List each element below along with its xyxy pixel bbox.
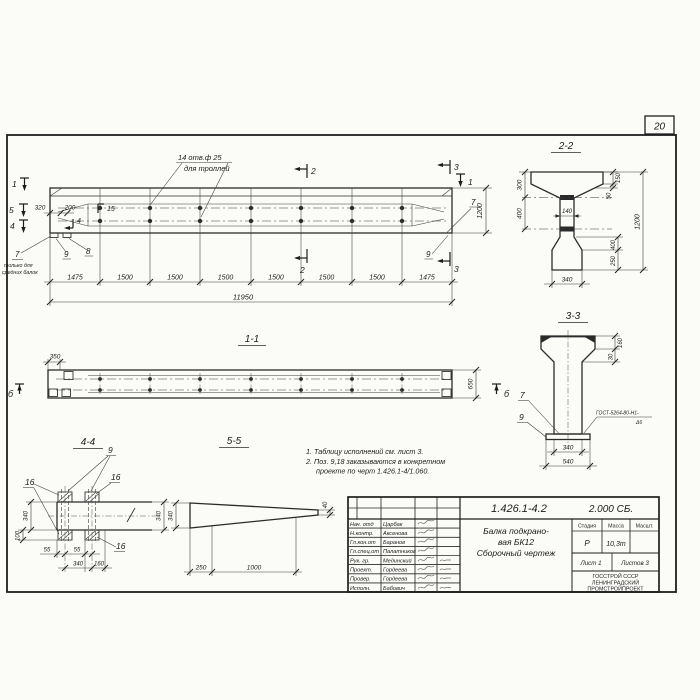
dim-350: 350	[50, 354, 61, 361]
dim-650: 650	[468, 378, 475, 389]
dim-340-s55: 340	[169, 510, 175, 521]
dim-140: 140	[562, 209, 573, 215]
sheets-label: Листов 3	[620, 560, 649, 567]
staff-name-7: Гордеева	[383, 577, 407, 583]
chain-dim-6: 1500	[319, 275, 335, 282]
staff-role-3: Гл.кон.от	[350, 540, 376, 546]
section-5-5-title: 5-5	[227, 436, 242, 447]
doc-title-line2: вая БК12	[498, 537, 534, 547]
section-1-1-title: 1-1	[245, 334, 259, 345]
staff-name-8: Бабович	[383, 586, 405, 592]
org-line-2: ЛЕНИНГРАДСКИЙ	[592, 579, 639, 587]
svg-text:средних балок: средних балок	[2, 270, 38, 276]
cut-mark-5-left: 5	[9, 204, 28, 217]
pos-8-left: 8	[86, 247, 91, 256]
cut-mark-b-left: б	[8, 384, 24, 399]
svg-text:5: 5	[9, 205, 14, 215]
svg-text:2: 2	[299, 265, 305, 275]
dim-1200-section: 1200	[635, 214, 642, 230]
dim-320: 320	[35, 205, 46, 212]
dim-300: 300	[517, 179, 524, 190]
dim-55-b: 55	[74, 548, 81, 554]
org-line-3: ПРОМСТРОЙПРОЕКТ	[587, 585, 644, 593]
staff-name-1: Царбак	[383, 522, 403, 528]
pos-9-s33: 9	[519, 412, 524, 422]
cut-mark-1-left: 1	[12, 178, 29, 191]
dim-340-s22: 340	[562, 277, 573, 284]
dim-340-s33: 340	[563, 445, 574, 452]
dim-340-left-s44: 340	[24, 510, 30, 521]
weld-note-line2: Δ6	[635, 420, 642, 426]
pos-16-right: 16	[111, 472, 121, 482]
dim-200: 200	[64, 205, 76, 212]
dim-160-s33: 160	[618, 337, 624, 348]
cut-mark-4-left: 4	[10, 220, 28, 233]
doc-title-line1: Балка подкрано-	[483, 526, 549, 536]
cut-mark-2-bottom: 2	[294, 249, 307, 275]
dim-total: 11950	[233, 293, 254, 302]
pos-16-left: 16	[25, 477, 35, 487]
svg-text:2: 2	[310, 166, 316, 176]
drawing-sheet: 20 14 отв.ф 25 для троллей	[0, 0, 700, 700]
dim-160-s44: 160	[94, 562, 105, 568]
note-line-2: 2. Поз. 9,18 заказываются в конкретном	[305, 457, 445, 466]
pos-7-left-note: 7 только для средних балок	[2, 236, 51, 276]
svg-text:3: 3	[454, 264, 459, 274]
dim-30: 30	[609, 353, 615, 360]
dim-400-left: 400	[517, 208, 524, 219]
staff-role-7: Провер.	[350, 577, 371, 583]
dim-50: 50	[607, 192, 613, 199]
dim-1000: 1000	[247, 565, 262, 572]
scale-label: Масшт.	[636, 524, 654, 530]
cut-mark-b-right: б	[492, 384, 510, 399]
staff-name-4: Палатников	[383, 549, 416, 555]
doc-number: 1.426.1-4.2	[491, 503, 547, 515]
pos-9-left: 9	[64, 250, 69, 259]
staff-name-5: Мединский	[383, 557, 412, 564]
chain-dim-7: 1500	[369, 275, 385, 282]
pos-9-right: 9	[426, 250, 431, 259]
staff-role-6: Проект.	[350, 568, 372, 574]
staff-name-3: Баранов	[383, 540, 405, 546]
staff-role-8: Исполн.	[350, 586, 371, 592]
mass-label: Масса	[608, 524, 624, 530]
svg-text:3: 3	[454, 162, 459, 172]
note-line-1: 1. Таблицу исполнений см. лист 3.	[306, 447, 423, 456]
cut-mark-2-top: 2	[294, 164, 316, 178]
dim-540: 540	[563, 459, 574, 466]
dim-400-right: 400	[611, 239, 617, 250]
chain-dim-2: 1500	[117, 275, 133, 282]
staff-name-2: Аксенова	[382, 531, 407, 537]
pos-7-s33: 7	[520, 390, 525, 400]
weld-note-line1: ГОСТ-5264-80-Н1-	[596, 411, 639, 417]
dim-1200-main: 1200	[477, 203, 484, 219]
holes-note-line1: 14 отв.ф 25	[178, 153, 222, 162]
dim-250: 250	[611, 255, 617, 267]
staff-role-1: Нач. отд	[350, 522, 374, 528]
dim-150: 150	[616, 172, 622, 183]
title-block-staff-rows: Нач. отдЦарбак Н.контр.Аксенова Гл.кон.о…	[350, 522, 416, 592]
svg-text:7: 7	[15, 250, 20, 259]
main-elevation-view: 14 отв.ф 25 для троллей 320 200 15 4 1 5…	[2, 153, 492, 306]
signature-marks	[418, 520, 451, 589]
section-3-3: 3-3 160 30 7 9 ГОСТ-5264-80-Н1- Δ6 340 5…	[517, 311, 652, 470]
dim-250-s55: 250	[195, 565, 207, 572]
pos-7-right: 7	[471, 198, 476, 207]
chain-dim-5: 1500	[268, 275, 284, 282]
section-2-2: 2-2 300 400 150 50 1200 400 250 140	[517, 141, 649, 288]
doc-title-line3: Сборочный чертеж	[477, 548, 557, 558]
svg-text:б: б	[8, 389, 14, 399]
cut-mark-3-bottom: 3	[437, 252, 459, 274]
drawing-canvas: 20 14 отв.ф 25 для троллей	[0, 0, 700, 700]
svg-text:1: 1	[12, 179, 17, 189]
chain-dim-1: 1475	[67, 275, 83, 282]
svg-text:б: б	[504, 389, 510, 399]
chain-dim-3: 1500	[167, 275, 183, 282]
svg-text:1: 1	[468, 177, 473, 187]
pos-16-bottom: 16	[116, 541, 126, 551]
sheet-label: Лист 1	[579, 560, 601, 567]
section-2-2-title: 2-2	[558, 141, 574, 152]
org-line-1: ГОССТРОЙ СССР	[592, 572, 638, 580]
dim-340-bottom-s44: 340	[73, 562, 84, 568]
mass-value: 10,3т	[606, 541, 626, 548]
svg-text:только для: только для	[4, 263, 33, 269]
section-3-3-title: 3-3	[566, 311, 581, 322]
dim-55-a: 55	[44, 548, 51, 554]
staff-name-6: Гордеева	[383, 568, 407, 574]
cut-mark-3-top: 3	[437, 160, 459, 174]
section-4-4: 4-4 9 16 16 16	[16, 437, 170, 572]
doc-suffix: 2.000 СБ.	[588, 504, 633, 515]
section-4-4-title: 4-4	[81, 437, 96, 448]
chain-dim-8: 1475	[419, 275, 435, 282]
pos-9-s44: 9	[108, 445, 113, 455]
page-number: 20	[653, 122, 666, 133]
stage-value: Р	[584, 539, 590, 548]
dim-100-s44: 100	[16, 530, 22, 541]
section-1-1: 1-1 350 650 б	[8, 334, 510, 401]
dim-340-right-s44: 340	[157, 510, 163, 521]
note-line-3: проекте по черт 1.426.1-4/1.060.	[316, 467, 429, 476]
title-block: 1.426.1-4.2 2.000 СБ. Балка подкрано- ва…	[348, 497, 659, 593]
stage-label: Стадия	[578, 524, 596, 530]
staff-role-2: Н.контр.	[350, 531, 374, 537]
staff-role-4: Гл.спец.от	[350, 549, 379, 555]
pos-15: 15	[107, 206, 115, 213]
svg-text:4: 4	[10, 221, 15, 231]
staff-role-5: Рук. гр.	[350, 558, 370, 564]
dim-40: 40	[323, 501, 329, 508]
chain-dim-4: 1500	[218, 275, 234, 282]
cut-mark-1-right: 1	[456, 174, 473, 187]
pos-4: 4	[77, 218, 81, 225]
general-notes: 1. Таблицу исполнений см. лист 3. 2. Поз…	[305, 447, 445, 476]
